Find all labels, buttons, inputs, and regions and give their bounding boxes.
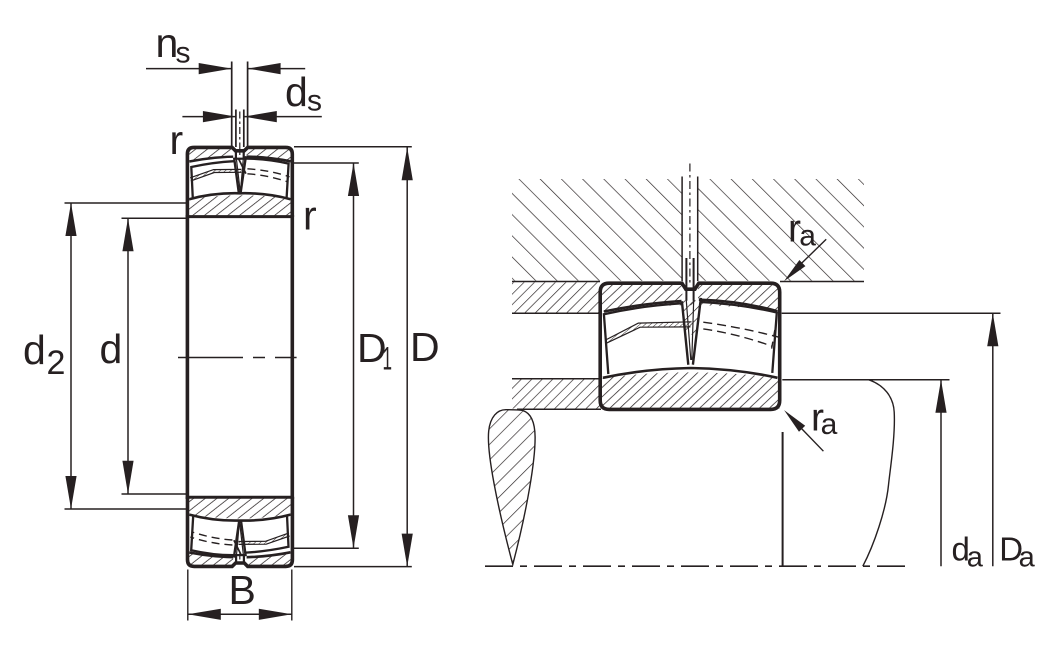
svg-text:d: d xyxy=(285,69,308,115)
svg-text:a: a xyxy=(799,220,816,253)
svg-text:2: 2 xyxy=(47,344,66,382)
svg-text:D: D xyxy=(410,324,440,370)
svg-text:s: s xyxy=(307,85,322,118)
svg-text:a: a xyxy=(967,542,984,574)
svg-text:1: 1 xyxy=(383,341,393,377)
svg-text:B: B xyxy=(229,567,256,613)
svg-text:a: a xyxy=(821,408,838,441)
svg-text:d: d xyxy=(100,326,123,372)
svg-text:r: r xyxy=(303,193,317,239)
svg-text:r: r xyxy=(170,117,184,163)
svg-text:s: s xyxy=(176,37,191,70)
svg-text:a: a xyxy=(1019,542,1036,574)
svg-text:d: d xyxy=(23,327,46,373)
